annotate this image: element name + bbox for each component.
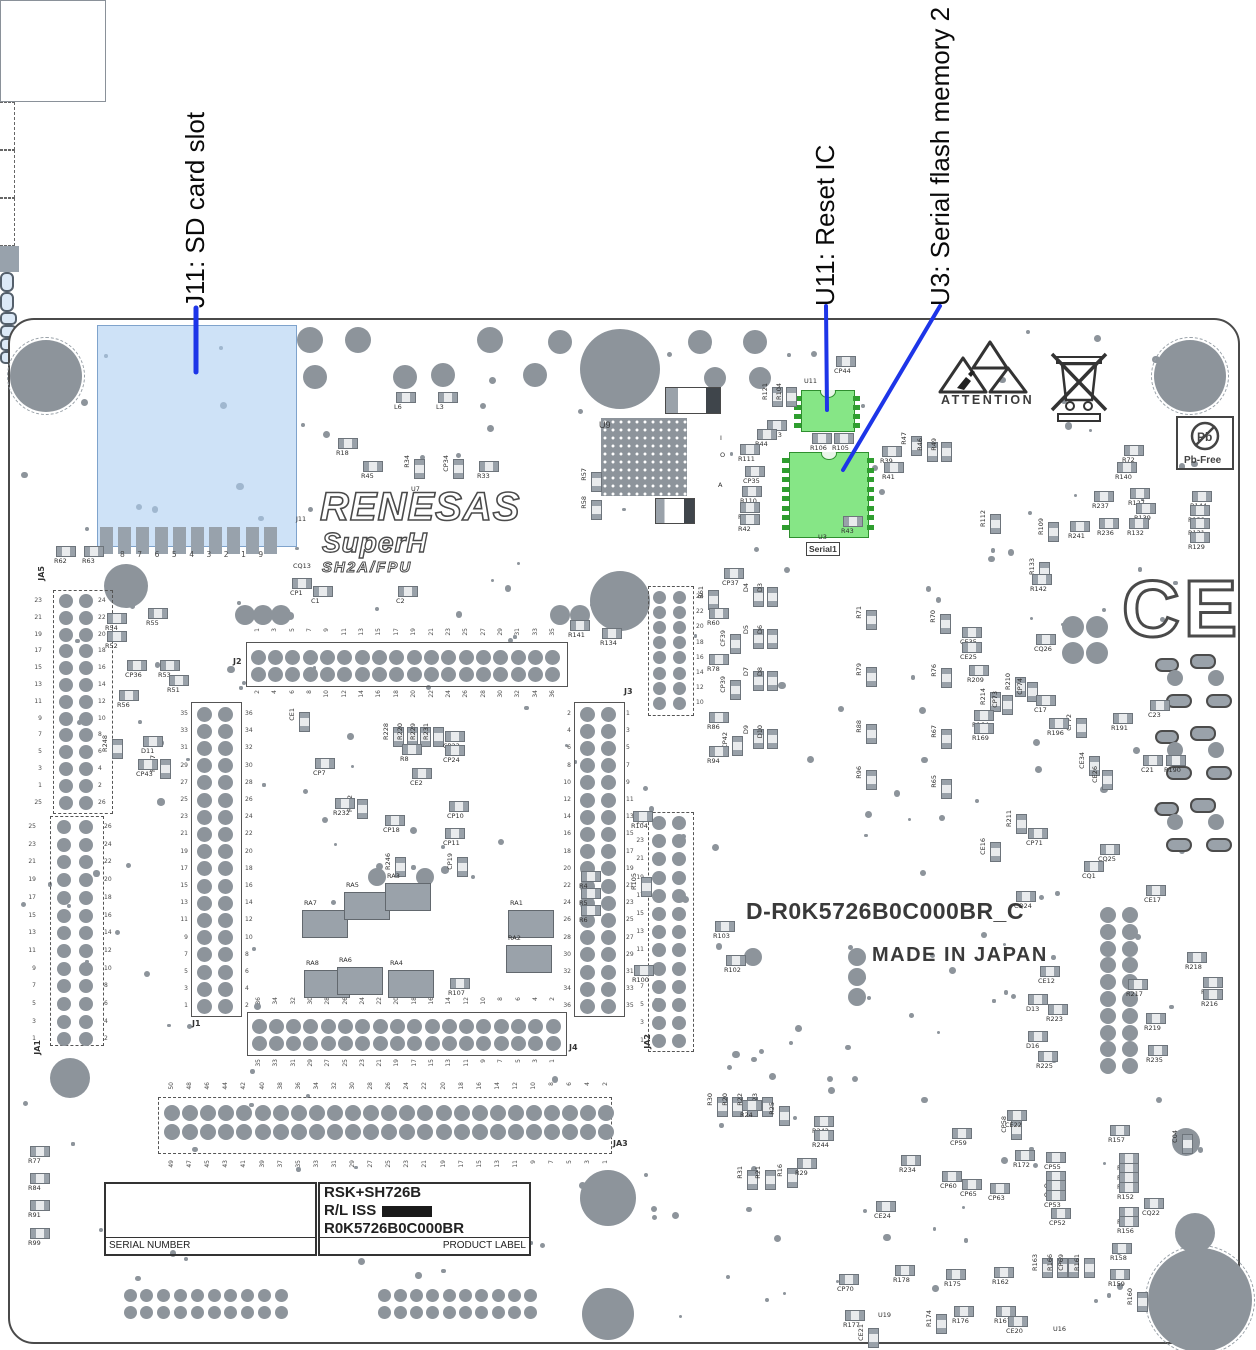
smd-component-R60: [709, 608, 729, 619]
pin-number: 24: [559, 900, 571, 906]
mounting-hole: [548, 330, 572, 354]
pin-number: 25: [24, 824, 36, 830]
pin-number: 20: [394, 997, 400, 1005]
component-label-R152: R152: [1117, 1194, 1134, 1201]
component-label-R34: R34: [404, 455, 411, 468]
component-label-R218: R218: [1185, 964, 1202, 971]
smd-component-R65: [941, 779, 952, 799]
pin-pad: [321, 1019, 336, 1034]
mounting-hole: [580, 1170, 636, 1226]
pin-pad: [672, 871, 686, 885]
pin-number: 9: [24, 966, 36, 972]
pin-pad: [197, 913, 212, 928]
smd-component-R225: [1038, 1051, 1058, 1062]
component-label-R104: R104: [631, 823, 648, 830]
smd-component-R34: [414, 459, 425, 479]
u3-highlight-pin: [782, 477, 789, 482]
pin-number: 11: [632, 947, 644, 953]
pin-pad: [140, 1306, 153, 1319]
pin-pad: [653, 606, 666, 619]
pin-pad: [303, 1019, 318, 1034]
pin-pad: [218, 879, 233, 894]
smd-component-R218: [1187, 952, 1207, 963]
pin-pad: [601, 793, 616, 808]
u11-highlight-pin: [853, 396, 860, 401]
pin-number: 27: [325, 1059, 331, 1067]
pin-pad: [268, 667, 283, 682]
smd-component-R138: [1190, 505, 1210, 516]
smd-component-R61: [708, 590, 719, 610]
component-label-R107: R107: [448, 990, 465, 997]
pin-pad: [492, 1289, 505, 1302]
component-label-R156: R156: [1117, 1228, 1134, 1235]
pin-number: 19: [394, 1059, 400, 1067]
smd-component-R21: [765, 1170, 776, 1190]
pin-pad: [255, 1105, 271, 1121]
pin-number: 41: [241, 1160, 247, 1168]
pin-number: 15: [626, 831, 634, 837]
pin-pad: [601, 913, 616, 928]
component-label-CP39: CP39: [720, 676, 727, 693]
pin-pad: [338, 1019, 353, 1034]
smd-component-R215: [1203, 977, 1223, 988]
component-label-R103: R103: [713, 933, 730, 940]
pin-number: 17: [30, 648, 42, 654]
pin-pad: [601, 827, 616, 842]
pin-number: 33: [273, 1059, 279, 1067]
via: [410, 827, 417, 834]
smd-component-CE12: [1040, 966, 1060, 977]
u3-highlight-pin: [867, 477, 874, 482]
pin-number: 8: [104, 983, 108, 989]
pin-number: 29: [308, 1059, 314, 1067]
edge-pad-hole: [1208, 670, 1224, 686]
pin-pad: [218, 827, 233, 842]
pin-number: 46: [205, 1082, 211, 1090]
pin-number: 25: [30, 800, 42, 806]
smd-component-R176: [954, 1306, 974, 1317]
smd-component-R248: [112, 739, 123, 759]
pin-pad: [303, 667, 318, 682]
pin-number: 45: [205, 1160, 211, 1168]
pin-number: 12: [696, 685, 704, 691]
serial1-tag: Serial1: [806, 542, 840, 556]
pin-pad: [1122, 941, 1138, 957]
mounting-hole: [1154, 340, 1226, 412]
via: [652, 1215, 657, 1220]
via: [1001, 1157, 1008, 1164]
component-label-L6: L6: [394, 404, 402, 411]
smd-component-R104: [633, 811, 653, 822]
pin-pad: [140, 1289, 153, 1302]
component-label-CP1: CP1: [290, 590, 303, 597]
pin-pad: [424, 650, 439, 665]
pin-number: 26: [104, 824, 112, 830]
component-label-RA3: RA3: [387, 873, 400, 880]
pin-pad: [291, 1105, 307, 1121]
component-label-CQ13: CQ13: [293, 563, 311, 570]
component-label-R105: R105: [631, 873, 638, 890]
component-label-R129: R129: [1188, 544, 1205, 551]
pin-number: 3: [632, 1020, 644, 1026]
smd-component-CP10: [449, 801, 469, 812]
via: [323, 431, 330, 438]
pin-number: 1: [626, 711, 630, 717]
smd-component-R8: [402, 744, 422, 755]
component-label-CQ22: CQ22: [1142, 1210, 1160, 1217]
via: [1030, 617, 1033, 620]
pin-pad: [79, 678, 93, 692]
pin-pad: [79, 628, 93, 642]
component-label-R102: R102: [724, 967, 741, 974]
pin-pad: [355, 1036, 370, 1051]
u3-highlight-pin: [867, 496, 874, 501]
pin-pad: [355, 1019, 370, 1034]
component-label-R106: R106: [810, 445, 827, 452]
component-label-C21: C21: [1141, 767, 1154, 774]
pin-pad: [426, 1289, 439, 1302]
pin-number: 7: [498, 1059, 504, 1063]
pin-number: 24: [446, 690, 452, 698]
pin-number: 21: [176, 831, 188, 837]
pin-pad: [197, 741, 212, 756]
pin-pad: [601, 861, 616, 876]
component-label-R29: R29: [795, 1170, 808, 1177]
smd-component-CQ26: [1036, 634, 1056, 645]
pin-pad: [79, 873, 93, 887]
pin-pad: [673, 682, 686, 695]
pin-pad: [251, 650, 266, 665]
component-label-D6: D6: [757, 625, 764, 634]
component-label-R24: R24: [740, 1112, 753, 1119]
pin-pad: [672, 980, 686, 994]
pin-pad: [57, 820, 71, 834]
smd-component-R5: [581, 888, 601, 899]
smd-component-R232: [335, 798, 355, 809]
pin-pad: [79, 891, 93, 905]
component-label-R55: R55: [146, 620, 159, 627]
pin-number: 25: [463, 628, 469, 636]
via: [981, 932, 987, 938]
smd-component-R72: [1124, 445, 1144, 456]
u3-highlight-pin: [867, 515, 874, 520]
pin-pad: [1100, 1025, 1116, 1041]
mounting-hole: [550, 605, 570, 625]
pin-pad: [157, 1289, 170, 1302]
pin-number: 1: [550, 1059, 556, 1063]
pin-number: 35: [296, 1160, 302, 1168]
component-label-D11: D11: [141, 748, 154, 755]
serial-number-caption: SERIAL NUMBER: [106, 1237, 315, 1254]
pin-pad: [197, 827, 212, 842]
pin-number: 12: [559, 797, 571, 803]
pin-pad: [389, 667, 404, 682]
component-label-R52: R52: [105, 643, 118, 650]
smd-component-R134: [602, 628, 622, 639]
smd-component-C17: [1036, 695, 1056, 706]
component-label-RA8: RA8: [306, 960, 319, 967]
pin-pad: [268, 650, 283, 665]
component-label-R191: R191: [1111, 725, 1128, 732]
smd-component-R129: [1190, 532, 1210, 543]
pin-pad: [218, 741, 233, 756]
edge-pad: [1206, 694, 1232, 708]
component-label-R231: R231: [423, 723, 430, 740]
component-label-U19: U19: [878, 1312, 891, 1319]
component-label-RA6: RA6: [339, 957, 352, 964]
pin-number: 9: [531, 1160, 537, 1164]
connector-label-J1: J1: [192, 1020, 201, 1028]
pin-pad: [197, 861, 212, 876]
pin-number: 32: [559, 969, 571, 975]
smd-array-RA5: [344, 892, 390, 920]
component-label-R219: R219: [1144, 1025, 1161, 1032]
pin-pad: [652, 998, 666, 1012]
via: [1028, 511, 1032, 515]
pin-pad: [275, 1306, 288, 1319]
via: [135, 1276, 141, 1282]
pin-pad: [601, 999, 616, 1014]
via: [415, 1272, 421, 1278]
mounting-hole: [1148, 1248, 1252, 1350]
component-label-R244: R244: [812, 1142, 829, 1149]
component-label-R6: R6: [579, 917, 588, 924]
smd-component-R86: [709, 712, 729, 723]
pin-number: 26: [245, 797, 253, 803]
edge-pad: [1190, 726, 1216, 741]
pin-pad: [275, 1289, 288, 1302]
edge-pad-bracket: [0, 150, 15, 198]
via: [303, 789, 308, 794]
pin-number: 34: [533, 690, 539, 698]
pin-pad: [580, 844, 595, 859]
pin-number: 20: [411, 690, 417, 698]
pin-number: 20: [98, 632, 106, 638]
smd-component-R52: [107, 631, 127, 642]
pin-number: 15: [176, 883, 188, 889]
pin-pad: [601, 741, 616, 756]
via: [239, 686, 242, 689]
connector-label-J2: J2: [233, 658, 242, 666]
edge-pad: [1206, 838, 1232, 852]
pin-pad: [327, 1105, 343, 1121]
pin-pad: [443, 1306, 456, 1319]
u11-highlight-pin: [853, 414, 860, 419]
pin-pad: [378, 1289, 391, 1302]
pin-pad: [320, 667, 335, 682]
pin-pad: [394, 1306, 407, 1319]
mounting-hole: [580, 329, 660, 409]
component-label-R71: R71: [856, 606, 863, 619]
smd-component-R164: [974, 710, 994, 721]
edge-pad-hole: [1167, 670, 1183, 686]
u3-highlight-pin: [867, 525, 874, 530]
via: [865, 811, 872, 818]
pin-number: 20: [104, 877, 112, 883]
component-label-CP37: CP37: [722, 580, 739, 587]
pin-number: 7: [307, 628, 313, 632]
component-label-R214: R214: [980, 688, 987, 705]
pin-pad: [182, 1124, 198, 1140]
via: [845, 1045, 851, 1051]
pin-number: 38: [278, 1082, 284, 1090]
pin-number: 6: [245, 969, 249, 975]
pin-number: 31: [176, 745, 188, 751]
pin-pad: [1100, 1008, 1116, 1024]
pin-pad: [79, 1015, 93, 1029]
smd-component-R247: [160, 759, 171, 779]
smd-component-R217: [1128, 979, 1148, 990]
pin-number: 28: [325, 997, 331, 1005]
component-label-CP18: CP18: [383, 827, 400, 834]
component-label-R172: R172: [1013, 1162, 1030, 1169]
pin-number: 12: [98, 699, 106, 705]
smd-component-R219: [1146, 1013, 1166, 1024]
smd-component-R175: [946, 1269, 966, 1280]
pin-pad: [493, 667, 508, 682]
pin-number: 5: [290, 628, 296, 632]
pin-pad: [59, 779, 73, 793]
component-label-RA7: RA7: [304, 900, 317, 907]
pin-number: 36: [245, 711, 253, 717]
pin-number: 19: [626, 866, 634, 872]
pin-pad: [79, 712, 93, 726]
smd-component-R4: [581, 871, 601, 882]
pin-number: 22: [559, 883, 571, 889]
pin-pad: [218, 965, 233, 980]
via: [1094, 1299, 1098, 1303]
via: [672, 1212, 679, 1219]
pin-pad: [442, 1036, 457, 1051]
pin-number: 33: [533, 628, 539, 636]
component-label-R228: R228: [383, 723, 390, 740]
pin-pad: [79, 838, 93, 852]
pin-pad: [490, 1105, 506, 1121]
pin-pad: [251, 667, 266, 682]
component-label-R91: R91: [28, 1212, 41, 1219]
pin-number: 18: [104, 895, 112, 901]
component-label-R16: R16: [777, 1164, 784, 1177]
pin-number: 28: [559, 935, 571, 941]
smd-component-CE25: [962, 642, 982, 653]
pin-number: 21: [30, 615, 42, 621]
pin-number: 13: [495, 1160, 501, 1168]
product-line-2: R/L ISS: [320, 1202, 529, 1220]
smd-component-CE26: [1102, 770, 1113, 790]
pin-pad: [57, 909, 71, 923]
smd-component-L3: [438, 392, 458, 403]
pin-number: 31: [332, 1160, 338, 1168]
via: [937, 1031, 940, 1034]
smd-array-RA6: [337, 967, 383, 995]
via: [991, 548, 996, 553]
component-label-R30: R30: [707, 1093, 714, 1106]
pin-pad: [197, 965, 212, 980]
pin-number: 4: [272, 690, 278, 694]
pin-pad: [273, 1105, 289, 1121]
via: [864, 834, 867, 837]
edge-pad: [1190, 798, 1216, 813]
pin-pad: [511, 667, 526, 682]
component-label-R105: R105: [832, 445, 849, 452]
via: [769, 1073, 776, 1080]
smd-component-CP39: [730, 680, 741, 700]
u11-highlight-pin: [794, 423, 801, 428]
smd-component-R40: [740, 502, 760, 513]
pin-pad: [218, 861, 233, 876]
component-label-R88: R88: [856, 720, 863, 733]
pin-number: 17: [176, 866, 188, 872]
pin-number: 3: [30, 766, 42, 772]
pin-number: 19: [441, 1160, 447, 1168]
smd-component-R67: [941, 729, 952, 749]
component-label-R70: R70: [930, 610, 937, 623]
pin-pad: [157, 1306, 170, 1319]
pin-pad: [511, 1019, 526, 1034]
via: [227, 666, 234, 673]
sd-oval-pad: [0, 312, 17, 325]
pin-pad: [389, 650, 404, 665]
component-label-R121: R121: [762, 383, 769, 400]
pin-number: 5: [30, 749, 42, 755]
component-label-R100: R100: [632, 977, 649, 984]
component-label-CE17: CE17: [1144, 897, 1161, 904]
component-label-R86: R86: [707, 724, 720, 731]
pin-number: 34: [559, 986, 571, 992]
pin-number: 18: [559, 849, 571, 855]
serial-number-box: SERIAL NUMBER: [104, 1182, 317, 1256]
pin-number: 2: [255, 690, 261, 694]
pbfree-symbol: PbPb-Free: [1176, 416, 1234, 470]
via: [667, 352, 672, 357]
component-label-CP36: CP36: [125, 672, 142, 679]
pin-pad: [79, 594, 93, 608]
pin-number: 21: [377, 1059, 383, 1067]
smd-component-R242: [814, 1116, 834, 1127]
smd-component-R131: [1190, 518, 1210, 529]
component-label-R175: R175: [944, 1281, 961, 1288]
pin-pad: [355, 667, 370, 682]
smd-component-R222: [357, 799, 368, 819]
pin-number: 13: [30, 682, 42, 688]
via: [331, 900, 336, 905]
mounting-hole: [431, 363, 455, 387]
sd-card-pin: [227, 527, 240, 554]
pin-number: 34: [314, 1082, 320, 1090]
pin-number: 28: [368, 1082, 374, 1090]
pin-number: 19: [411, 628, 417, 636]
pin-number: 27: [481, 628, 487, 636]
pin-pad: [258, 1306, 271, 1319]
pin-pad: [1100, 941, 1116, 957]
pin-number: 22: [422, 1082, 428, 1090]
pin-number: 16: [429, 997, 435, 1005]
pin-pad: [373, 1019, 388, 1034]
sd-pin-number: 1: [241, 550, 246, 559]
component-label-CE20: CE20: [1006, 1328, 1023, 1335]
component-label-R43: R43: [841, 528, 854, 535]
pin-number: 26: [98, 800, 106, 806]
via: [296, 1167, 300, 1171]
smd-component-R157: [1110, 1125, 1130, 1136]
smd-component-CP7: [315, 758, 335, 769]
smd-component-R71: [866, 610, 877, 630]
pin-number: 36: [559, 1003, 571, 1009]
pin-pad: [390, 1019, 405, 1034]
smd-component-R223: [1048, 1004, 1068, 1015]
pin-pad: [79, 997, 93, 1011]
pin-number: 23: [632, 838, 644, 844]
